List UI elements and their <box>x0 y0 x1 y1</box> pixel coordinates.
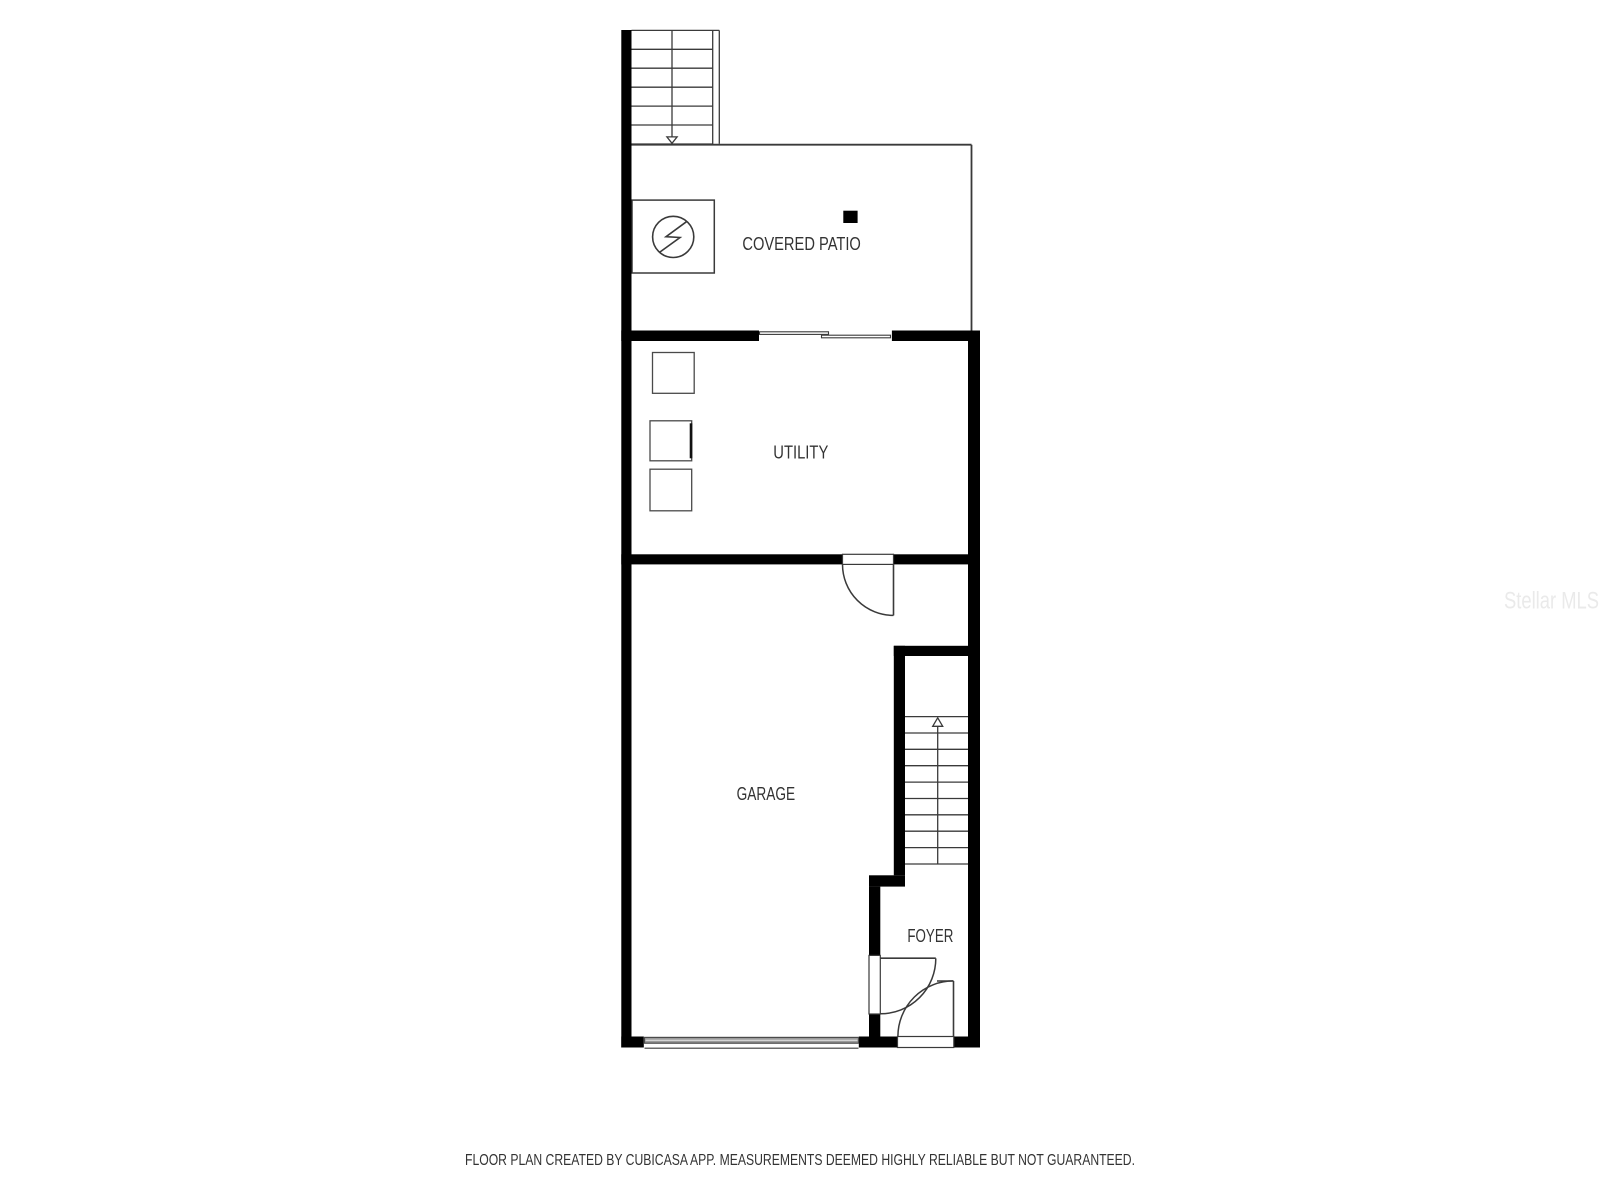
svg-text:FLOOR PLAN CREATED BY CUBICASA: FLOOR PLAN CREATED BY CUBICASA APP. MEAS… <box>465 1152 1135 1169</box>
svg-text:FOYER: FOYER <box>907 926 953 946</box>
svg-text:COVERED PATIO: COVERED PATIO <box>742 234 861 254</box>
svg-text:GARAGE: GARAGE <box>737 784 796 804</box>
svg-text:UTILITY: UTILITY <box>773 442 828 462</box>
svg-text:Stellar MLS: Stellar MLS <box>1504 588 1599 615</box>
